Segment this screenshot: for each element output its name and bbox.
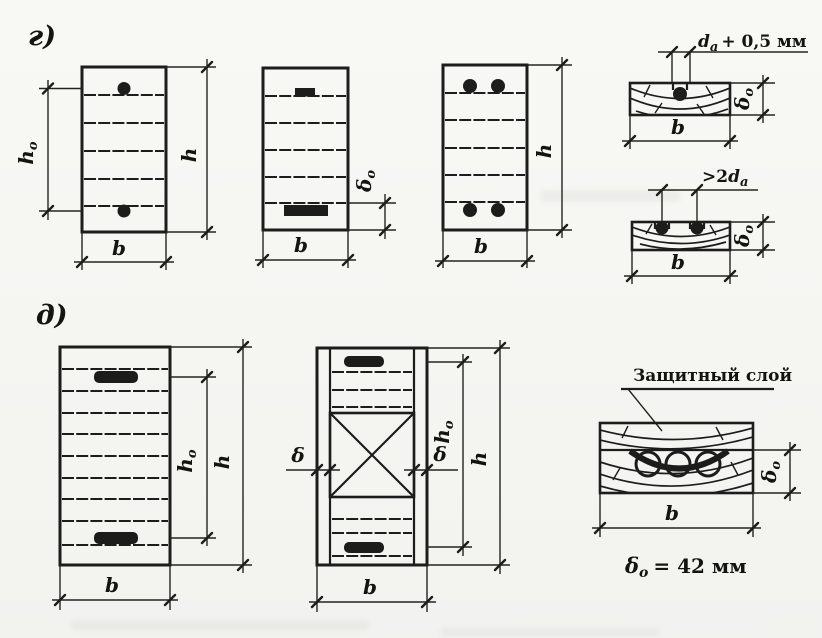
detail-groove-double-bar: >2da δo b — [624, 167, 775, 284]
dim-delta-right: δ — [404, 442, 458, 475]
g-beam-flat-bars: δo b — [255, 68, 396, 268]
dim-delta0: δo — [730, 75, 775, 123]
dim-delta0: δo — [753, 442, 801, 501]
dim-b: b — [255, 230, 356, 268]
dim-delta-left: δ — [286, 443, 340, 475]
dim-label-b: b — [665, 501, 679, 525]
dim-h: h — [166, 59, 216, 240]
dim-h: h — [527, 57, 572, 238]
cross-brace-panel — [330, 413, 414, 497]
rebar-top-right — [491, 79, 505, 93]
detail-protective-layer: Защитный слой δo b — [592, 366, 801, 581]
bar-spacing-note: >2da — [702, 167, 748, 190]
dim-label-delta: δ — [432, 442, 446, 466]
dim-b: b — [74, 232, 174, 270]
dim-label-delta0: δo — [757, 461, 784, 484]
rebar-right — [691, 222, 704, 235]
rebar-bottom — [118, 205, 131, 218]
rebar-top — [118, 82, 131, 95]
diagonals — [330, 413, 414, 497]
dim-label-delta: δ — [290, 443, 304, 467]
growth-rings — [632, 224, 730, 249]
lamination-joints — [445, 93, 525, 202]
detail-groove-single-bar: da+ 0,5 мм δo b — [622, 32, 808, 149]
dim-label-h0: ho — [430, 420, 457, 444]
section-g-label: г) — [28, 21, 56, 52]
lamination-joints — [84, 95, 164, 206]
dim-delta0: δo — [348, 170, 396, 239]
dim-label-b: b — [294, 233, 308, 257]
dim-label-h: h — [210, 455, 234, 470]
dim-label-b: b — [363, 575, 377, 599]
scanned-diagram-page: г) ho h b — [0, 0, 822, 638]
rebar-group-bottom — [94, 532, 138, 544]
d-beam-bar-groups: ho h b — [52, 339, 252, 610]
dim-label-b: b — [671, 250, 685, 274]
rebar-strip-top — [295, 88, 315, 97]
dim-label-h: h — [467, 452, 491, 467]
g-beam-double-round-bars: h b — [435, 57, 572, 268]
dim-label-b: b — [474, 234, 488, 258]
rebar-left — [656, 222, 669, 235]
d-beam-side-plates-xcore: δ δ ho h b — [286, 340, 510, 612]
dim-label-delta0: δo — [730, 225, 757, 248]
dim-label-h0: ho — [14, 141, 41, 165]
dim-groove-width — [658, 47, 808, 84]
dim-label-delta0: δo — [730, 88, 757, 111]
dim-delta0: δo — [730, 214, 775, 258]
dim-b: b — [624, 250, 738, 284]
dim-h0: ho — [14, 80, 82, 220]
rebar-2 — [666, 452, 690, 476]
g-beam-round-bars: ho h b — [14, 59, 216, 270]
growth-rings-upper — [600, 426, 753, 449]
lamination-joints — [62, 369, 168, 545]
cover-value-note: δo= 42 мм — [624, 553, 747, 581]
rebar-bottom-left — [463, 203, 477, 217]
rebar-in-groove — [673, 87, 687, 101]
dim-label-h: h — [177, 148, 201, 163]
dim-b: b — [592, 493, 761, 537]
scan-noise — [440, 628, 660, 636]
dim-label-b: b — [112, 236, 126, 260]
leader-line — [628, 389, 662, 431]
scan-noise — [70, 620, 370, 630]
dim-b: b — [622, 115, 738, 149]
lamination-joints — [265, 96, 346, 203]
dim-label-b: b — [105, 573, 119, 597]
dim-label-b: b — [671, 115, 685, 139]
rebar-bottom-right — [491, 203, 505, 217]
rebar-strip-bottom — [284, 205, 328, 216]
dim-b: b — [52, 565, 178, 610]
figure-canvas: г) ho h b — [0, 0, 822, 638]
section-d-label: д) — [36, 300, 68, 331]
rebar-top-left — [463, 79, 477, 93]
dim-label-h: h — [532, 144, 556, 159]
dim-b: b — [435, 230, 535, 268]
dim-label-h0: ho — [173, 449, 200, 473]
rebar-group-top — [94, 371, 138, 383]
protective-layer-label: Защитный слой — [633, 366, 793, 386]
rebar-group-bottom — [344, 542, 384, 553]
dim-b: b — [309, 565, 436, 612]
scan-noise — [540, 190, 680, 202]
lamination-joints — [332, 372, 412, 556]
rebar-group-top — [344, 356, 384, 367]
dim-label-delta0: δo — [352, 170, 379, 193]
